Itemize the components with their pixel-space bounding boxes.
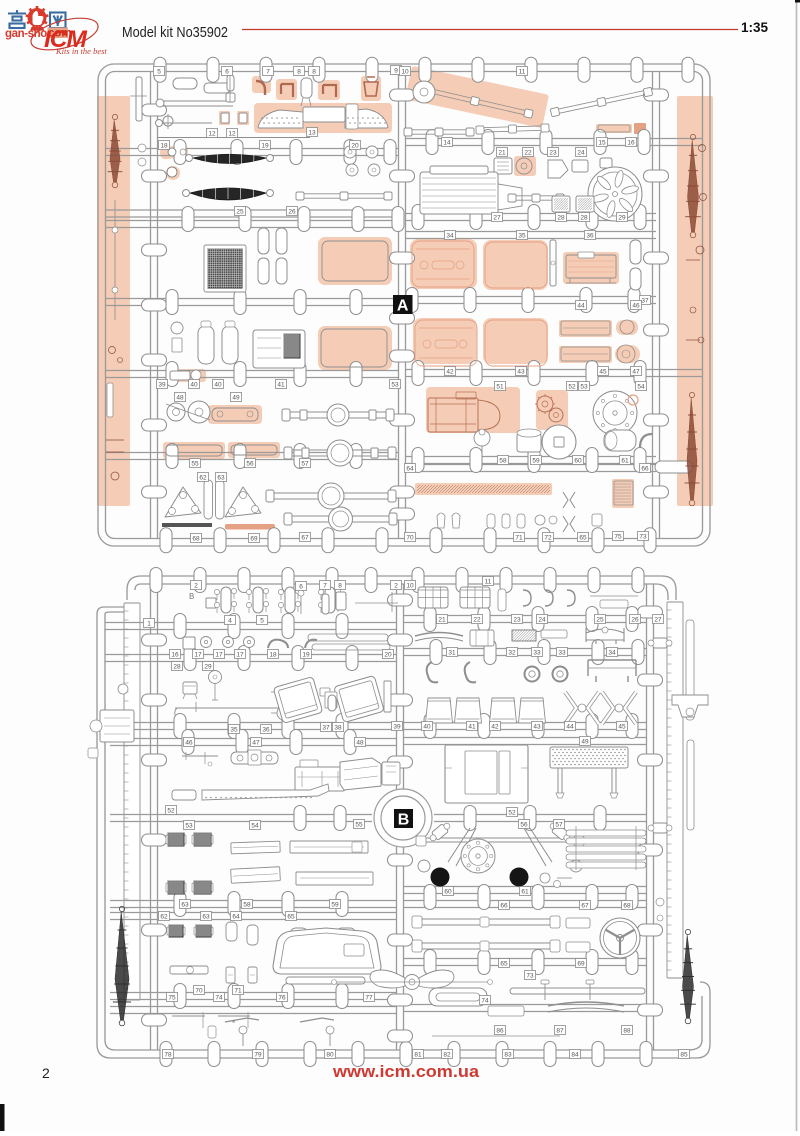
svg-text:53: 53 [391, 381, 399, 388]
svg-text:60: 60 [444, 888, 452, 895]
svg-text:81: 81 [414, 1051, 422, 1058]
svg-text:79: 79 [254, 1051, 262, 1058]
svg-text:21: 21 [438, 616, 446, 623]
svg-text:62: 62 [199, 474, 207, 481]
svg-text:73: 73 [526, 972, 534, 979]
svg-text:63: 63 [202, 913, 210, 920]
svg-text:48: 48 [356, 739, 364, 746]
svg-text:84: 84 [571, 1051, 579, 1058]
svg-text:20: 20 [351, 142, 359, 149]
svg-text:61: 61 [521, 888, 529, 895]
svg-text:54: 54 [637, 383, 645, 390]
svg-text:43: 43 [517, 368, 525, 375]
svg-text:57: 57 [555, 821, 563, 828]
svg-text:73: 73 [639, 533, 647, 540]
svg-text:www.icm.com.ua: www.icm.com.ua [332, 1062, 480, 1081]
svg-text:40: 40 [190, 381, 198, 388]
svg-text:2: 2 [194, 582, 198, 589]
svg-text:29: 29 [204, 663, 212, 670]
svg-text:80: 80 [326, 1051, 334, 1058]
svg-text:85: 85 [680, 1051, 688, 1058]
svg-text:64: 64 [406, 465, 414, 472]
svg-text:40: 40 [214, 381, 222, 388]
svg-text:1:35: 1:35 [741, 20, 769, 35]
svg-text:46: 46 [632, 302, 640, 309]
svg-text:8: 8 [338, 582, 342, 589]
svg-text:B: B [189, 592, 194, 601]
svg-text:42: 42 [446, 368, 454, 375]
svg-text:51: 51 [496, 383, 504, 390]
svg-text:58: 58 [243, 901, 251, 908]
svg-text:10: 10 [401, 68, 409, 75]
svg-text:68: 68 [623, 902, 631, 909]
svg-text:63: 63 [217, 474, 225, 481]
svg-text:20: 20 [384, 651, 392, 658]
svg-text:11: 11 [519, 68, 526, 75]
svg-text:A: A [397, 298, 409, 315]
svg-text:18: 18 [160, 142, 168, 149]
svg-text:25: 25 [236, 208, 244, 215]
svg-text:5: 5 [260, 617, 264, 624]
svg-text:62: 62 [160, 913, 168, 920]
svg-text:44: 44 [577, 302, 585, 309]
svg-text:28: 28 [173, 663, 181, 670]
svg-text:55: 55 [355, 821, 363, 828]
svg-text:72: 72 [544, 534, 552, 541]
svg-text:69: 69 [577, 960, 585, 967]
svg-text:52: 52 [568, 383, 576, 390]
svg-text:33: 33 [533, 649, 541, 656]
svg-text:44: 44 [566, 723, 574, 730]
svg-text:88: 88 [623, 1027, 631, 1034]
svg-text:53: 53 [580, 383, 588, 390]
svg-text:29: 29 [618, 214, 626, 221]
svg-text:78: 78 [164, 1051, 172, 1058]
svg-text:28: 28 [557, 214, 565, 221]
svg-text:77: 77 [365, 994, 373, 1001]
svg-text:19: 19 [302, 651, 310, 658]
svg-text:82: 82 [443, 1051, 451, 1058]
svg-text:70: 70 [406, 534, 414, 541]
svg-text:36: 36 [262, 726, 270, 733]
svg-text:41: 41 [468, 723, 476, 730]
svg-text:67: 67 [581, 902, 589, 909]
svg-text:18: 18 [269, 651, 277, 658]
svg-text:41: 41 [277, 381, 285, 388]
svg-text:22: 22 [473, 616, 481, 623]
svg-text:23: 23 [549, 149, 557, 156]
svg-text:48: 48 [176, 394, 184, 401]
svg-text:66: 66 [500, 902, 508, 909]
svg-text:*: * [232, 1019, 235, 1028]
svg-text:1: 1 [147, 620, 151, 627]
svg-text:35: 35 [230, 726, 238, 733]
svg-text:52: 52 [167, 807, 175, 814]
svg-text:66: 66 [641, 465, 649, 472]
svg-text:56: 56 [246, 460, 254, 467]
svg-text:28: 28 [580, 214, 588, 221]
svg-text:61: 61 [621, 457, 629, 464]
svg-text:19: 19 [261, 142, 269, 149]
svg-text:2: 2 [394, 582, 398, 589]
svg-text:32: 32 [508, 649, 516, 656]
svg-text:5: 5 [157, 68, 161, 75]
svg-text:4: 4 [228, 617, 232, 624]
svg-text:47: 47 [252, 739, 260, 746]
svg-text:Kits in the best: Kits in the best [55, 46, 107, 56]
svg-text:37: 37 [322, 724, 330, 731]
svg-text:39: 39 [393, 723, 401, 730]
svg-text:35: 35 [518, 232, 526, 239]
svg-text:49: 49 [581, 738, 589, 745]
svg-text:21: 21 [498, 149, 506, 156]
svg-text:15: 15 [598, 139, 606, 146]
svg-text:6: 6 [299, 583, 303, 590]
svg-text:76: 76 [278, 994, 286, 1001]
svg-text:25: 25 [596, 616, 604, 623]
svg-text:14: 14 [443, 139, 451, 146]
svg-text:60: 60 [574, 457, 582, 464]
svg-text:B: B [398, 812, 410, 829]
svg-text:87: 87 [556, 1027, 564, 1034]
svg-text:8: 8 [297, 68, 301, 75]
svg-text:75: 75 [614, 533, 622, 540]
svg-text:17: 17 [194, 651, 202, 658]
svg-text:37: 37 [641, 297, 649, 304]
svg-text:59: 59 [331, 901, 339, 908]
svg-text:13: 13 [308, 129, 316, 136]
svg-text:34: 34 [608, 649, 616, 656]
svg-text:24: 24 [538, 616, 546, 623]
svg-text:24: 24 [577, 149, 585, 156]
svg-text:31: 31 [448, 649, 456, 656]
svg-text:68: 68 [192, 535, 200, 542]
svg-text:65: 65 [500, 960, 508, 967]
svg-text:23: 23 [513, 616, 521, 623]
svg-text:12: 12 [228, 130, 236, 137]
svg-text:17: 17 [215, 651, 223, 658]
svg-text:34: 34 [446, 232, 454, 239]
svg-text:74: 74 [481, 997, 489, 1004]
svg-text:27: 27 [493, 214, 501, 221]
svg-text:54: 54 [251, 822, 259, 829]
svg-text:45: 45 [618, 723, 626, 730]
svg-text:59: 59 [532, 457, 540, 464]
svg-text:26: 26 [288, 208, 296, 215]
svg-text:43: 43 [533, 723, 541, 730]
svg-text:47: 47 [632, 368, 640, 375]
svg-text:7: 7 [323, 582, 327, 589]
svg-text:26: 26 [631, 616, 639, 623]
svg-text:11: 11 [485, 578, 492, 585]
svg-text:10: 10 [406, 582, 414, 589]
svg-text:38: 38 [334, 724, 342, 731]
svg-text:70: 70 [195, 987, 203, 994]
svg-text:17: 17 [236, 651, 244, 658]
svg-text:52: 52 [508, 809, 516, 816]
svg-text:74: 74 [215, 994, 223, 1001]
svg-text:42: 42 [491, 723, 499, 730]
svg-text:69: 69 [250, 535, 258, 542]
svg-text:Model kit No35902: Model kit No35902 [122, 24, 228, 41]
svg-text:56: 56 [520, 821, 528, 828]
svg-text:53: 53 [185, 822, 193, 829]
svg-text:16: 16 [171, 651, 179, 658]
svg-text:36: 36 [586, 232, 594, 239]
svg-text:55: 55 [191, 460, 199, 467]
svg-text:22: 22 [524, 149, 532, 156]
svg-text:8: 8 [312, 68, 316, 75]
svg-text:7: 7 [266, 68, 270, 75]
svg-text:16: 16 [627, 139, 635, 146]
svg-text:2: 2 [42, 1065, 50, 1081]
svg-text:40: 40 [423, 723, 431, 730]
svg-text:58: 58 [499, 457, 507, 464]
svg-text:57: 57 [301, 460, 309, 467]
svg-text:12: 12 [208, 130, 216, 137]
svg-text:86: 86 [496, 1027, 504, 1034]
svg-text:49: 49 [232, 394, 240, 401]
svg-text:75: 75 [168, 994, 176, 1001]
svg-text:65: 65 [287, 913, 295, 920]
svg-text:64: 64 [232, 913, 240, 920]
svg-text:39: 39 [158, 381, 166, 388]
svg-text:6: 6 [225, 68, 229, 75]
svg-text:71: 71 [234, 987, 242, 994]
svg-text:46: 46 [185, 739, 193, 746]
svg-text:71: 71 [515, 534, 523, 541]
svg-text:9: 9 [394, 67, 398, 74]
svg-text:27: 27 [654, 616, 662, 623]
svg-text:33: 33 [558, 649, 566, 656]
svg-text:45: 45 [599, 368, 607, 375]
svg-text:63: 63 [181, 901, 189, 908]
svg-text:67: 67 [301, 534, 309, 541]
svg-text:65: 65 [579, 534, 587, 541]
svg-text:83: 83 [504, 1051, 512, 1058]
